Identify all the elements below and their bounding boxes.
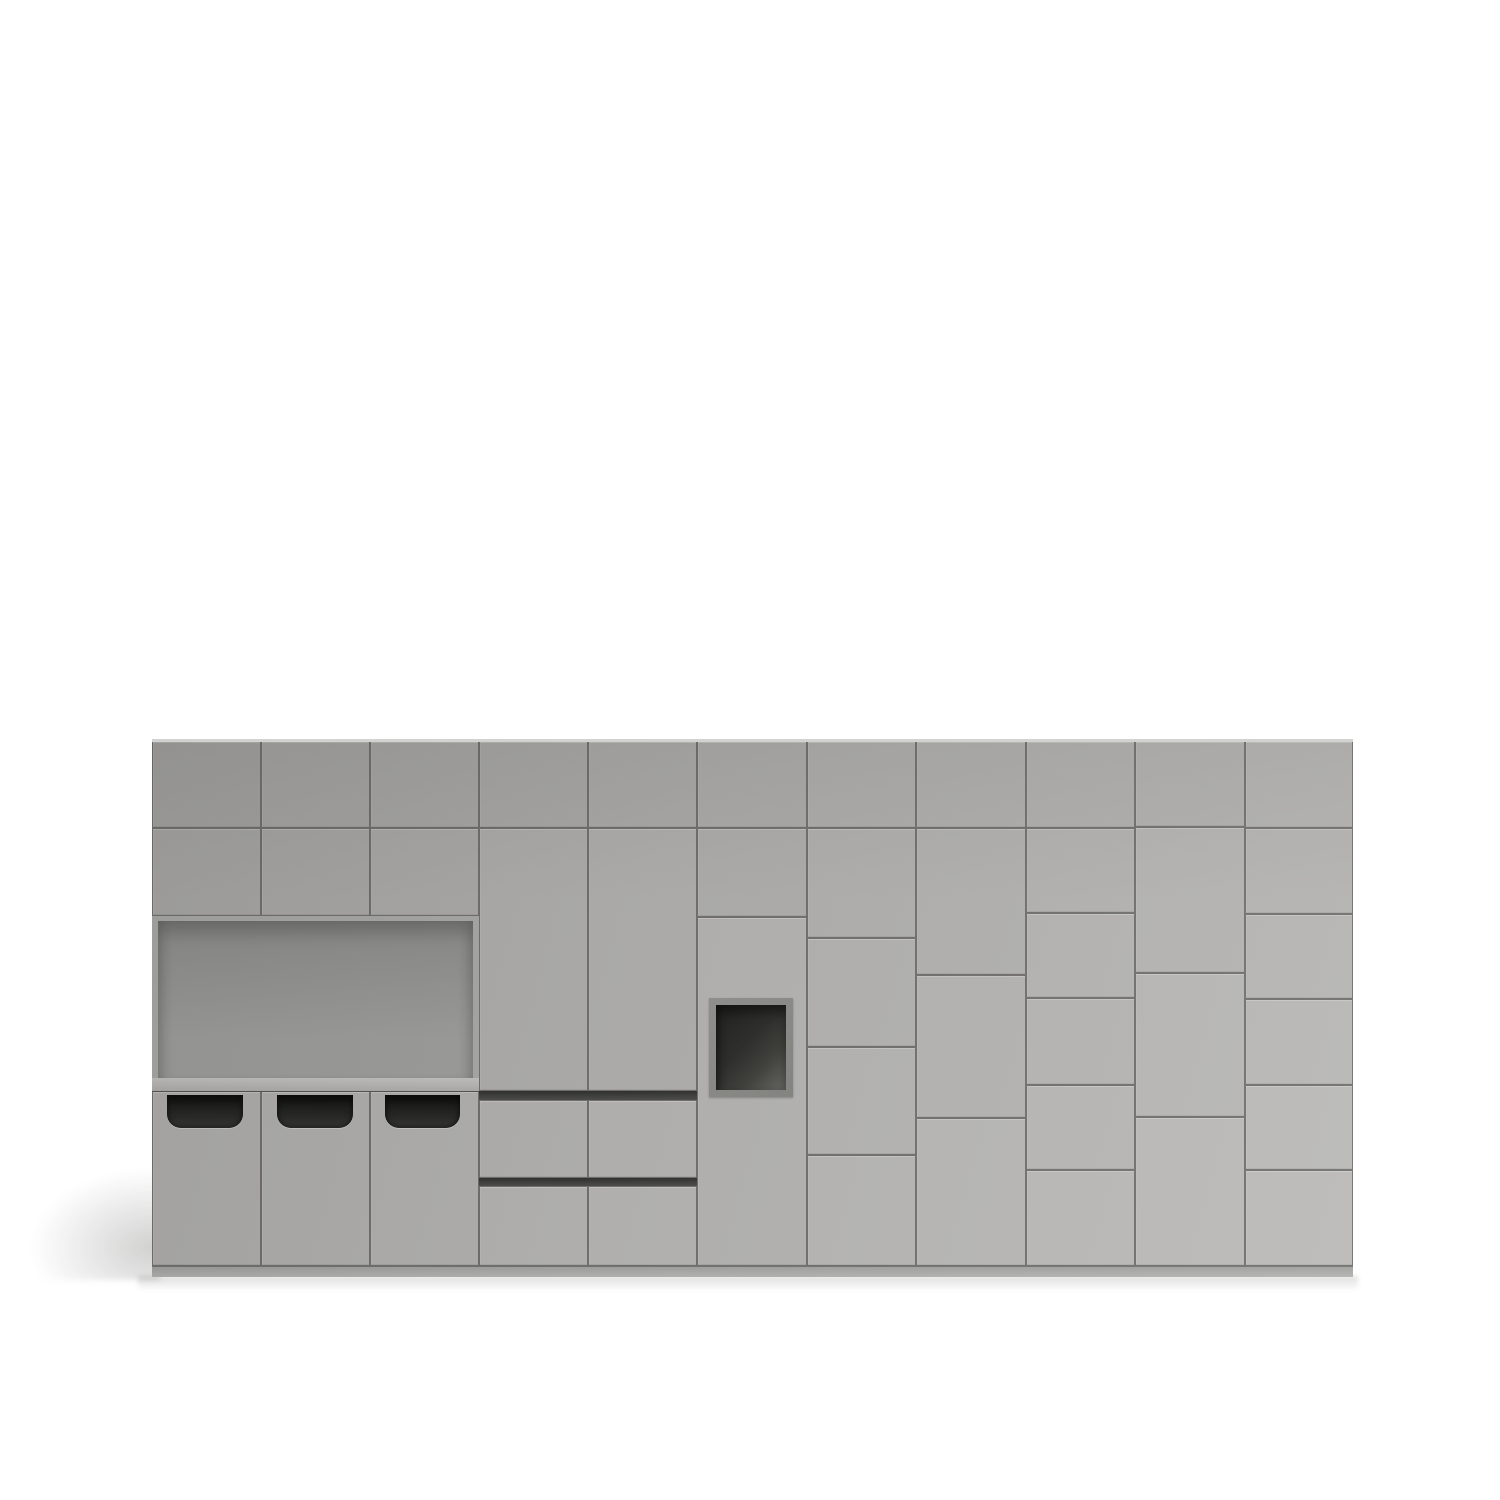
door-panel <box>1027 914 1134 997</box>
door-panel <box>808 829 915 937</box>
open-cubby-interior <box>716 1005 786 1090</box>
floor-shadow-bottom <box>138 1276 1358 1291</box>
door-panel <box>1246 1086 1352 1169</box>
door-panel <box>1246 829 1352 913</box>
door-panel <box>1246 742 1352 827</box>
door-panel <box>371 829 478 915</box>
door-panel <box>1246 1171 1352 1265</box>
drawer-groove <box>479 1091 697 1100</box>
door-panel <box>262 742 369 827</box>
door-panel <box>262 829 369 915</box>
floor-shadow-left <box>25 1165 160 1280</box>
bin-opening <box>385 1095 460 1128</box>
door-panel <box>698 829 806 916</box>
door-panel <box>1136 1118 1244 1265</box>
door-panel <box>698 742 806 827</box>
door-panel <box>917 829 1025 974</box>
door-panel <box>589 742 696 827</box>
door-panel <box>1027 1171 1134 1265</box>
drawer-panel <box>589 1187 696 1265</box>
door-panel <box>1027 829 1134 912</box>
door-panel <box>1246 1000 1352 1084</box>
door-panel <box>153 829 260 915</box>
door-panel <box>808 742 915 827</box>
door-panel <box>371 742 478 827</box>
plinth <box>152 1266 1353 1277</box>
drawer-panel <box>589 1101 696 1177</box>
drawer-panel <box>480 1101 587 1177</box>
door-panel <box>153 742 260 827</box>
door-panel <box>1027 1086 1134 1169</box>
open-niche-interior <box>158 921 473 1078</box>
bin-opening <box>167 1095 243 1128</box>
door-panel <box>808 1156 915 1265</box>
drawer-panel <box>480 1187 587 1265</box>
door-panel <box>589 829 696 1090</box>
door-panel <box>480 742 587 827</box>
drawer-groove <box>479 1178 697 1186</box>
storage-wall-cabinet <box>152 741 1353 1277</box>
bin-opening <box>277 1095 353 1128</box>
cabinet-top-edge <box>152 739 1353 742</box>
door-panel <box>808 939 915 1046</box>
door-panel <box>1027 999 1134 1084</box>
door-panel <box>917 742 1025 827</box>
product-render-stage <box>0 0 1500 1500</box>
door-panel <box>917 976 1025 1117</box>
niche-shelf <box>152 1078 479 1091</box>
door-panel <box>480 829 587 1090</box>
door-panel <box>808 1048 915 1154</box>
door-panel <box>1136 974 1244 1116</box>
door-panel <box>1027 742 1134 827</box>
door-panel <box>1136 828 1244 972</box>
door-panel <box>1246 915 1352 998</box>
door-panel <box>1136 742 1244 826</box>
door-panel <box>917 1119 1025 1265</box>
